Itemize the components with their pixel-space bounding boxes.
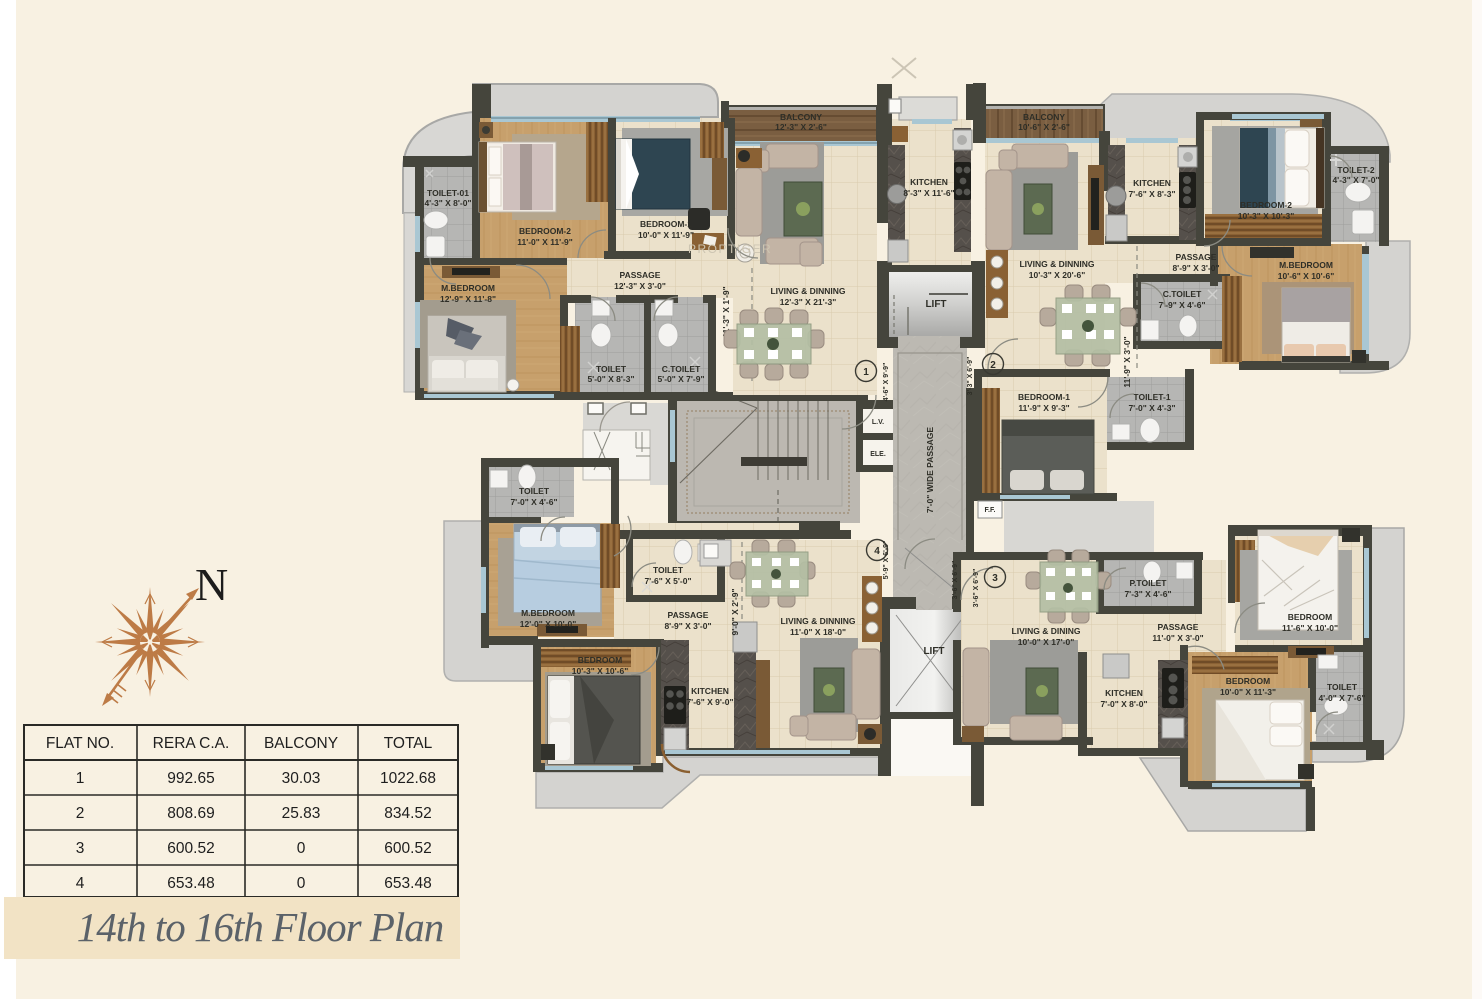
svg-text:TOILET: TOILET bbox=[1327, 682, 1358, 692]
svg-text:7'-0" X 4'-3": 7'-0" X 4'-3" bbox=[1128, 403, 1175, 413]
svg-text:BEDROOM: BEDROOM bbox=[1226, 676, 1270, 686]
svg-text:12'-9" X 11'-8": 12'-9" X 11'-8" bbox=[440, 294, 496, 304]
svg-text:10'-0" X 11'-3": 10'-0" X 11'-3" bbox=[1220, 687, 1276, 697]
svg-text:FLAT NO.: FLAT NO. bbox=[46, 735, 114, 752]
svg-text:L.V.: L.V. bbox=[872, 419, 884, 426]
svg-text:PASSAGE: PASSAGE bbox=[668, 610, 709, 620]
svg-text:BEDROOM: BEDROOM bbox=[578, 655, 622, 665]
svg-text:N: N bbox=[195, 559, 228, 610]
svg-text:LIVING & DINNING: LIVING & DINNING bbox=[770, 286, 845, 296]
svg-text:BEDROOM-1: BEDROOM-1 bbox=[1018, 392, 1070, 402]
svg-text:PASSAGE: PASSAGE bbox=[620, 270, 661, 280]
svg-text:2: 2 bbox=[76, 805, 85, 822]
svg-text:BEDROOM: BEDROOM bbox=[1288, 612, 1332, 622]
svg-text:PROPTIGER: PROPTIGER bbox=[688, 242, 772, 256]
svg-text:C.TOILET: C.TOILET bbox=[662, 364, 701, 374]
svg-text:5'-0" X 8'-3": 5'-0" X 8'-3" bbox=[587, 374, 634, 384]
svg-text:653.48: 653.48 bbox=[167, 875, 214, 892]
svg-text:M.BEDROOM: M.BEDROOM bbox=[441, 283, 495, 293]
svg-text:M.BEDROOM: M.BEDROOM bbox=[521, 608, 575, 618]
svg-text:600.52: 600.52 bbox=[167, 840, 214, 857]
svg-text:5'-9" X 6'-9": 5'-9" X 6'-9" bbox=[883, 541, 890, 580]
svg-text:12'-3" X 21'-3": 12'-3" X 21'-3" bbox=[780, 297, 837, 307]
svg-text:10'-6" X 2'-6": 10'-6" X 2'-6" bbox=[1018, 122, 1070, 132]
svg-text:TOILET-2: TOILET-2 bbox=[1337, 165, 1374, 175]
svg-text:1: 1 bbox=[76, 770, 85, 787]
svg-text:7'-0" WIDE PASSAGE: 7'-0" WIDE PASSAGE bbox=[925, 427, 935, 514]
svg-text:3: 3 bbox=[76, 840, 85, 857]
svg-text:8'-3" X 11'-6": 8'-3" X 11'-6" bbox=[903, 188, 954, 198]
svg-text:C.TOILET: C.TOILET bbox=[1163, 289, 1202, 299]
svg-text:10'-6" X 10'-6": 10'-6" X 10'-6" bbox=[1278, 271, 1335, 281]
svg-text:4: 4 bbox=[76, 875, 85, 892]
svg-text:1022.68: 1022.68 bbox=[380, 770, 436, 787]
svg-text:ELE.: ELE. bbox=[870, 451, 886, 458]
svg-text:11'-9" X 3'-0": 11'-9" X 3'-0" bbox=[1122, 336, 1132, 387]
svg-text:0: 0 bbox=[297, 840, 306, 857]
svg-text:7'-0" X 4'-6": 7'-0" X 4'-6" bbox=[510, 497, 557, 507]
svg-text:4'-0" X 7'-6": 4'-0" X 7'-6" bbox=[1318, 693, 1365, 703]
svg-text:9'-0" X 2'-9": 9'-0" X 2'-9" bbox=[730, 588, 740, 635]
svg-text:BEDROOM-2: BEDROOM-2 bbox=[1240, 200, 1292, 210]
svg-text:M.BEDROOM: M.BEDROOM bbox=[1279, 260, 1333, 270]
svg-text:992.65: 992.65 bbox=[167, 770, 214, 787]
svg-text:11'-6" X 10'-0": 11'-6" X 10'-0" bbox=[1282, 623, 1338, 633]
svg-text:BALCONY: BALCONY bbox=[264, 735, 338, 752]
svg-text:P.TOILET: P.TOILET bbox=[1129, 578, 1167, 588]
svg-text:BEDROOM-1: BEDROOM-1 bbox=[640, 219, 692, 229]
svg-text:2: 2 bbox=[990, 360, 996, 371]
svg-text:12'-0" X 10'-0": 12'-0" X 10'-0" bbox=[520, 619, 577, 629]
svg-text:4'-3" X 7'-0": 4'-3" X 7'-0" bbox=[1332, 175, 1379, 185]
svg-text:RERA C.A.: RERA C.A. bbox=[153, 735, 230, 752]
svg-text:30.03: 30.03 bbox=[282, 770, 321, 787]
svg-text:7'-6" X 5'-0": 7'-6" X 5'-0" bbox=[644, 576, 691, 586]
svg-text:TOILET: TOILET bbox=[519, 486, 550, 496]
svg-text:TOILET: TOILET bbox=[653, 565, 684, 575]
svg-text:12'-3" X 2'-6": 12'-3" X 2'-6" bbox=[775, 122, 827, 132]
svg-text:LIFT: LIFT bbox=[923, 646, 944, 657]
svg-text:14th to 16th Floor Plan: 14th to 16th Floor Plan bbox=[77, 904, 444, 950]
svg-text:LIVING & DINNING: LIVING & DINNING bbox=[780, 616, 855, 626]
svg-text:10'-3" X 10'-6": 10'-3" X 10'-6" bbox=[572, 666, 629, 676]
svg-text:7'-3" X 4'-6": 7'-3" X 4'-6" bbox=[1124, 589, 1171, 599]
svg-text:3'-3" X 6'-9": 3'-3" X 6'-9" bbox=[967, 357, 974, 396]
svg-text:10'-3" X 10'-3": 10'-3" X 10'-3" bbox=[1238, 211, 1295, 221]
svg-text:600.52: 600.52 bbox=[384, 840, 431, 857]
svg-text:F.F.: F.F. bbox=[985, 507, 996, 514]
svg-text:10'-0" X 17'-0": 10'-0" X 17'-0" bbox=[1018, 637, 1075, 647]
svg-text:11'-0" X 18'-0": 11'-0" X 18'-0" bbox=[790, 627, 846, 637]
svg-text:8'-9" X 3'-0": 8'-9" X 3'-0" bbox=[664, 621, 711, 631]
svg-text:PASSAGE: PASSAGE bbox=[1158, 622, 1199, 632]
svg-text:KITCHEN: KITCHEN bbox=[910, 177, 948, 187]
svg-text:KITCHEN: KITCHEN bbox=[691, 686, 729, 696]
svg-text:5'-0" X 7'-9": 5'-0" X 7'-9" bbox=[657, 374, 704, 384]
svg-text:10'-0" X 11'-9": 10'-0" X 11'-9" bbox=[638, 230, 694, 240]
svg-text:TOILET-1: TOILET-1 bbox=[1133, 392, 1170, 402]
svg-text:4'-6" X 9'-9": 4'-6" X 9'-9" bbox=[883, 363, 890, 402]
svg-text:KITCHEN: KITCHEN bbox=[1133, 178, 1171, 188]
svg-text:TOILET-01: TOILET-01 bbox=[427, 188, 469, 198]
svg-text:10'-3" X 20'-6": 10'-3" X 20'-6" bbox=[1029, 270, 1086, 280]
svg-text:PASSAGE: PASSAGE bbox=[1176, 252, 1217, 262]
svg-text:25.83: 25.83 bbox=[282, 805, 321, 822]
svg-text:7'-6" X 9'-0": 7'-6" X 9'-0" bbox=[686, 697, 733, 707]
svg-text:LIVING & DINNING: LIVING & DINNING bbox=[1019, 259, 1094, 269]
svg-text:0: 0 bbox=[297, 875, 306, 892]
svg-text:11'-0" X 11'-9": 11'-0" X 11'-9" bbox=[517, 237, 573, 247]
svg-text:BALCONY: BALCONY bbox=[780, 112, 822, 122]
svg-text:LIVING & DINING: LIVING & DINING bbox=[1012, 626, 1081, 636]
svg-text:BALCONY: BALCONY bbox=[1023, 112, 1065, 122]
svg-text:11'-9" X 9'-3": 11'-9" X 9'-3" bbox=[1018, 403, 1069, 413]
svg-text:8'-9" X 3'-0": 8'-9" X 3'-0" bbox=[1172, 263, 1219, 273]
svg-text:BEDROOM-2: BEDROOM-2 bbox=[519, 226, 571, 236]
svg-text:12'-3" X 3'-0": 12'-3" X 3'-0" bbox=[614, 281, 666, 291]
svg-text:7'-0" X 8'-0": 7'-0" X 8'-0" bbox=[1100, 699, 1147, 709]
svg-text:KITCHEN: KITCHEN bbox=[1105, 688, 1143, 698]
svg-text:4'-3" X 8'-0": 4'-3" X 8'-0" bbox=[424, 198, 471, 208]
svg-text:4: 4 bbox=[874, 546, 880, 557]
svg-text:LIFT: LIFT bbox=[925, 299, 946, 310]
svg-text:3: 3 bbox=[992, 573, 998, 584]
svg-text:11'-0" X 3'-0": 11'-0" X 3'-0" bbox=[1152, 633, 1203, 643]
svg-text:7'-6" X 8'-3": 7'-6" X 8'-3" bbox=[1128, 189, 1175, 199]
svg-text:808.69: 808.69 bbox=[167, 805, 214, 822]
svg-text:TOILET: TOILET bbox=[596, 364, 627, 374]
svg-text:653.48: 653.48 bbox=[384, 875, 431, 892]
svg-text:1: 1 bbox=[863, 367, 869, 378]
svg-text:834.52: 834.52 bbox=[384, 805, 431, 822]
svg-text:3'-6" X 6'-9": 3'-6" X 6'-9" bbox=[973, 569, 980, 608]
svg-text:3'-6" X 6'-9": 3'-6" X 6'-9" bbox=[952, 561, 959, 600]
svg-text:TOTAL: TOTAL bbox=[384, 735, 433, 752]
